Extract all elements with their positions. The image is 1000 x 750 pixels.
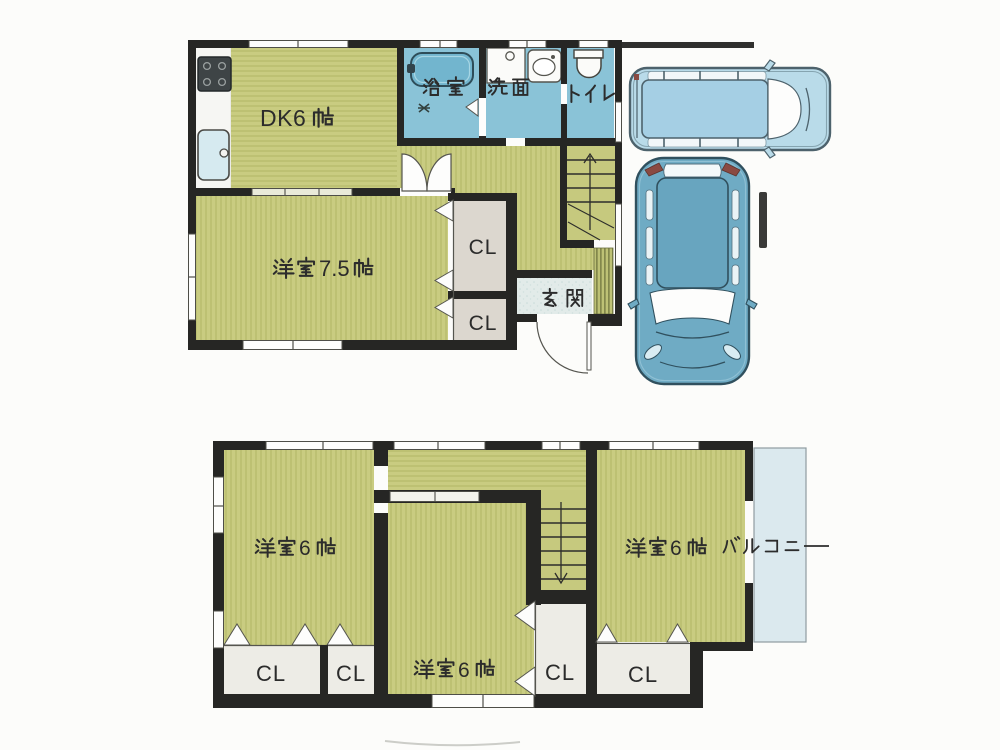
svg-text:CL: CL bbox=[336, 661, 366, 686]
svg-text:6: 6 bbox=[299, 537, 311, 560]
svg-text:CL: CL bbox=[628, 662, 658, 687]
svg-text:7.5: 7.5 bbox=[319, 256, 350, 281]
svg-text:6: 6 bbox=[458, 659, 470, 682]
svg-text:CL: CL bbox=[469, 236, 498, 259]
svg-text:CL: CL bbox=[545, 660, 575, 685]
svg-text:6: 6 bbox=[670, 537, 682, 560]
svg-text:DK6: DK6 bbox=[260, 105, 306, 131]
svg-text:CL: CL bbox=[256, 661, 286, 686]
svg-text:CL: CL bbox=[469, 312, 498, 335]
